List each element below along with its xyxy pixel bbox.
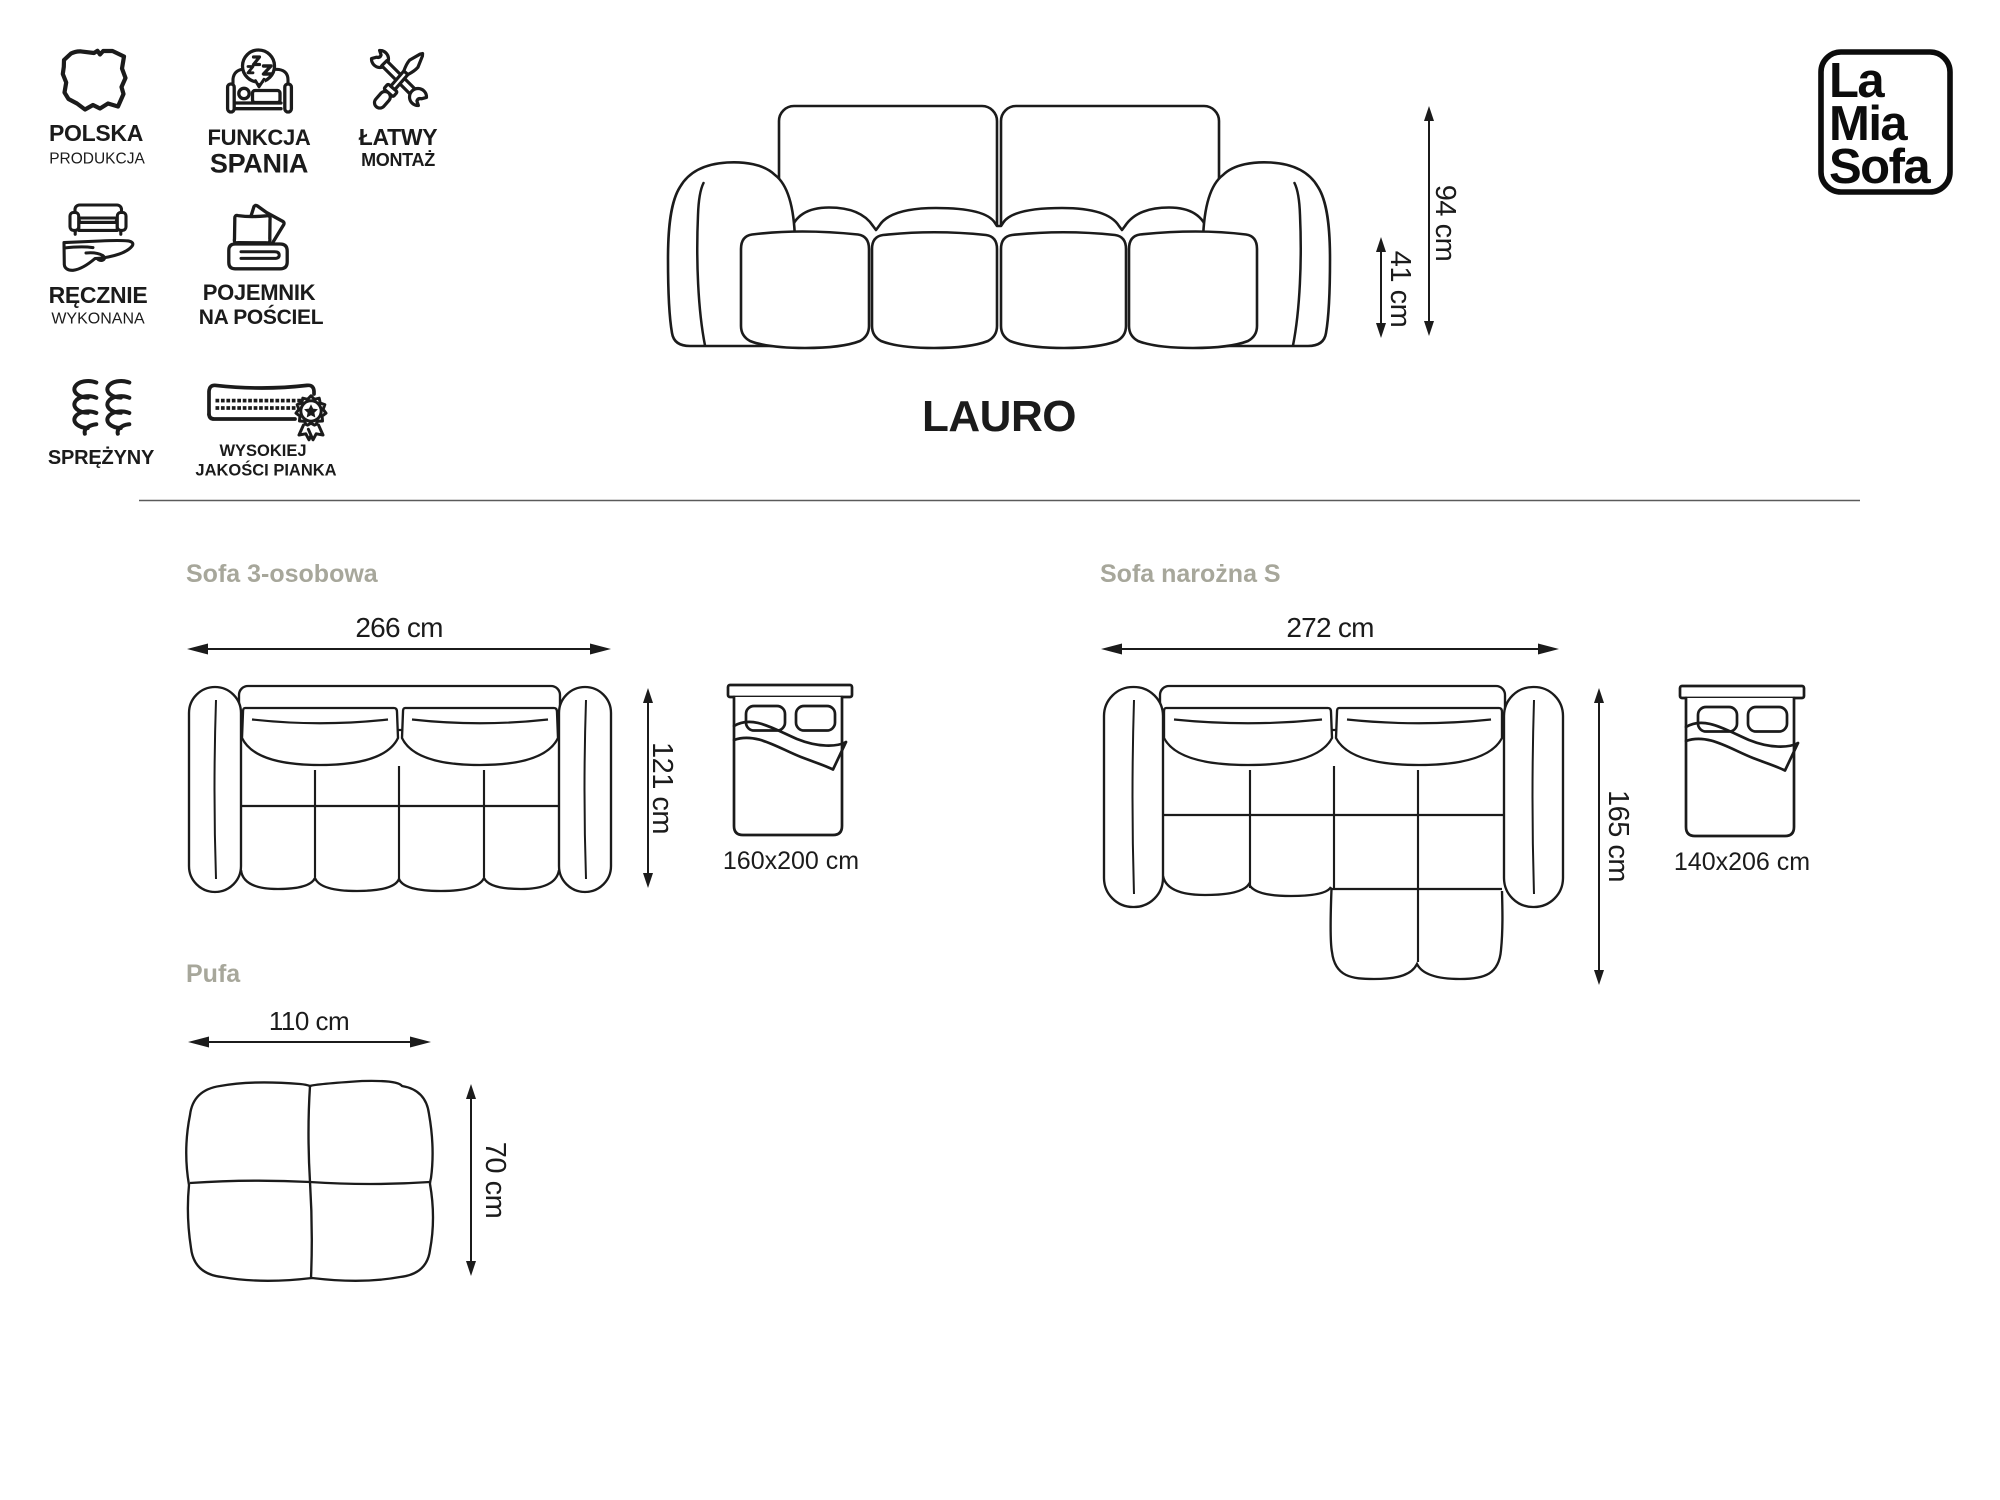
svg-text:POLSKA: POLSKA	[49, 120, 143, 146]
svg-text:JAKOŚCI PIANKA: JAKOŚCI PIANKA	[195, 461, 336, 480]
svg-text:SPANIA: SPANIA	[210, 149, 308, 179]
svg-text:94 cm: 94 cm	[1429, 185, 1461, 261]
svg-text:41 cm: 41 cm	[1384, 251, 1416, 327]
svg-text:Pufa: Pufa	[186, 960, 241, 988]
svg-text:165 cm: 165 cm	[1602, 790, 1634, 882]
svg-text:121 cm: 121 cm	[646, 742, 678, 834]
svg-text:RĘCZNIE: RĘCZNIE	[49, 282, 148, 308]
svg-text:SPRĘŻYNY: SPRĘŻYNY	[48, 446, 155, 469]
svg-text:MONTAŻ: MONTAŻ	[361, 150, 435, 170]
svg-text:POJEMNIK: POJEMNIK	[203, 280, 316, 305]
svg-text:110 cm: 110 cm	[269, 1006, 349, 1036]
svg-text:WYKONANA: WYKONANA	[51, 311, 145, 328]
svg-text:Sofa: Sofa	[1829, 140, 1931, 194]
svg-text:LAURO: LAURO	[922, 392, 1076, 441]
svg-text:WYSOKIEJ: WYSOKIEJ	[219, 442, 306, 460]
svg-text:140x206 cm: 140x206 cm	[1674, 848, 1810, 876]
svg-text:FUNKCJA: FUNKCJA	[207, 125, 310, 150]
svg-text:160x200 cm: 160x200 cm	[723, 847, 859, 875]
svg-text:ŁATWY: ŁATWY	[359, 124, 438, 150]
svg-text:NA POŚCIEL: NA POŚCIEL	[199, 305, 324, 329]
svg-text:272 cm: 272 cm	[1286, 612, 1373, 643]
svg-text:Sofa 3-osobowa: Sofa 3-osobowa	[186, 560, 379, 588]
svg-text:Sofa narożna S: Sofa narożna S	[1100, 560, 1281, 588]
svg-text:PRODUKCJA: PRODUKCJA	[49, 151, 145, 168]
svg-text:266 cm: 266 cm	[355, 612, 442, 643]
svg-text:70 cm: 70 cm	[479, 1142, 511, 1218]
